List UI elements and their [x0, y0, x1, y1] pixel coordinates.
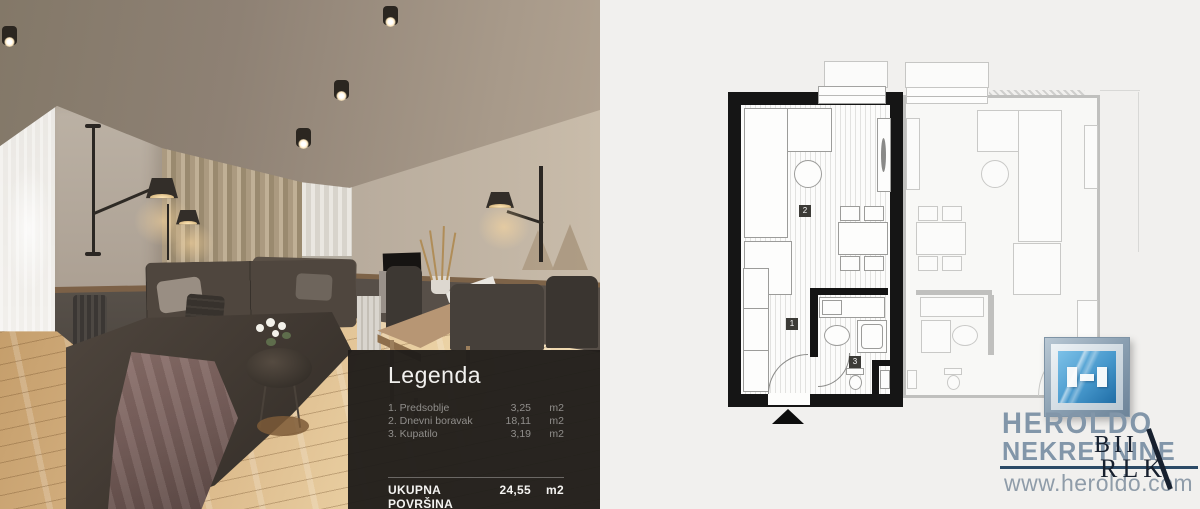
faint-plan-line: [1100, 90, 1140, 91]
legend-rows: 1. Predsoblje 3,25 m2 2. Dnevni boravak …: [348, 402, 600, 441]
room-unit: m2: [531, 415, 564, 428]
plant-leaf: [266, 338, 276, 346]
entrance-arrow-icon: [772, 409, 804, 424]
faint-plan-line: [1138, 92, 1139, 252]
ceiling-spotlight-icon: [2, 26, 17, 45]
ceiling-spotlight-icon: [334, 80, 349, 99]
neighbor-bath-wall: [916, 290, 992, 295]
balcony-block: [905, 62, 989, 88]
neighbor-toilet-bowl: [947, 375, 960, 390]
neighbor-window: [906, 87, 988, 104]
entrance-gap: [768, 393, 810, 405]
ceiling-spotlight-icon: [383, 6, 398, 25]
total-value: 24,55: [485, 483, 531, 509]
washer-plan: [880, 370, 890, 389]
room-area: 18,11: [485, 415, 531, 428]
legend-row: 3. Kupatilo 3,19 m2: [348, 428, 600, 441]
legend-total-row: UKUPNA POVRŠINA 24,55 m2: [348, 483, 600, 509]
neighbor-closet: [1084, 125, 1098, 189]
neighbor-sofa: [1018, 110, 1062, 242]
coffee-table-tray: [257, 416, 309, 436]
room-area: 3,19: [485, 428, 531, 441]
real-estate-listing-graphic: Legenda 1. Predsoblje 3,25 m2 2. Dnevni …: [0, 0, 1200, 509]
total-label: UKUPNA POVRŠINA: [388, 483, 485, 509]
floorplan-panel: 2 1 3 HEROLDO NEKRETNINE www.heroldo.com…: [600, 0, 1200, 509]
coffee-table-top: [246, 348, 312, 388]
wardrobe-divider: [743, 350, 769, 351]
dining-chair: [450, 284, 544, 350]
chair-plan: [864, 206, 884, 221]
toilet-tank-plan: [846, 368, 864, 375]
neighbor-chair: [942, 256, 962, 271]
neighbor-chair: [918, 206, 938, 221]
room-name: 1. Predsoblje: [388, 402, 485, 415]
chair-plan: [840, 256, 860, 271]
bathroom-sink-plan: [824, 325, 850, 346]
h-left-bar: [1067, 367, 1076, 388]
brand-divider: [1000, 466, 1198, 469]
bathroom-wall: [810, 288, 888, 295]
bathroom-wall: [810, 295, 818, 357]
neighbor-tv-cabinet: [906, 118, 920, 190]
dining-chair: [546, 276, 598, 348]
tv-cabinet-handle: [881, 138, 886, 172]
sofa-plan: [744, 108, 788, 238]
legend-row: 1. Predsoblje 3,25 m2: [348, 402, 600, 415]
white-flower: [272, 330, 279, 337]
room-name: 3. Kupatilo: [388, 428, 485, 441]
room-area: 3,25: [485, 402, 531, 415]
plant-leaf: [282, 332, 291, 339]
coffee-table-plan: [794, 160, 822, 188]
kitchen-sink-plan: [822, 300, 842, 315]
room-name: 2. Dnevni boravak: [388, 415, 485, 428]
legend-title: Legenda: [388, 362, 481, 389]
toilet-bowl-plan: [849, 375, 862, 390]
white-flower: [256, 324, 264, 332]
shower-tray: [861, 324, 883, 349]
room-label-bathroom: 3: [849, 356, 861, 368]
chair-plan: [840, 206, 860, 221]
white-flower: [266, 318, 275, 327]
room-label-hallway: 1: [786, 318, 798, 330]
neighbor-shower: [921, 320, 951, 353]
sofa-pillow: [295, 273, 332, 301]
neighbor-bath-wall: [988, 295, 994, 355]
neighbor-chair: [918, 256, 938, 271]
neighbor-rug: [1013, 243, 1061, 295]
logo-frame: [1051, 344, 1123, 410]
wall-lamp-rail-cap: [85, 252, 101, 256]
white-radiator: [357, 296, 381, 350]
room-unit: m2: [531, 402, 564, 415]
neighbor-sink: [952, 325, 978, 346]
neighbor-toilet-tank: [944, 368, 962, 375]
heroldo-logo-icon: [1044, 337, 1130, 417]
wardrobe-plan: [743, 268, 769, 392]
neighbor-counter: [920, 297, 984, 317]
room-label-living: 2: [799, 205, 811, 217]
right-lamp-rod: [539, 166, 543, 262]
wall-lamp-rod: [167, 204, 169, 260]
legend-divider: [388, 477, 564, 478]
neighbor-dining-table: [916, 222, 966, 255]
legend-panel: Legenda 1. Predsoblje 3,25 m2 2. Dnevni …: [348, 350, 600, 509]
wall-lamp-rail: [92, 126, 95, 256]
legend-row: 2. Dnevni boravak 18,11 m2: [348, 415, 600, 428]
balcony-block: [824, 61, 888, 88]
lamp-glow: [478, 204, 530, 250]
bathroom-wall-stub: [872, 360, 879, 394]
neighbor-washer: [907, 370, 917, 389]
wardrobe-divider: [743, 308, 769, 309]
chair-plan: [864, 256, 884, 271]
total-unit: m2: [531, 483, 564, 509]
lamp-glow: [168, 222, 214, 264]
unit-window: [818, 86, 886, 104]
white-flower: [278, 322, 286, 330]
logo-h-glyph: [1058, 351, 1116, 403]
h-middle-bar: [1080, 374, 1094, 381]
h-right-bar: [1097, 367, 1106, 388]
ceiling-spotlight-icon: [296, 128, 311, 147]
dining-table-plan: [838, 222, 888, 255]
left-sheer-curtain-window: [0, 104, 58, 348]
room-unit: m2: [531, 428, 564, 441]
neighbor-chair: [942, 206, 962, 221]
wall-lamp-rail-cap: [85, 124, 101, 128]
neighbor-coffee-table: [981, 160, 1009, 188]
